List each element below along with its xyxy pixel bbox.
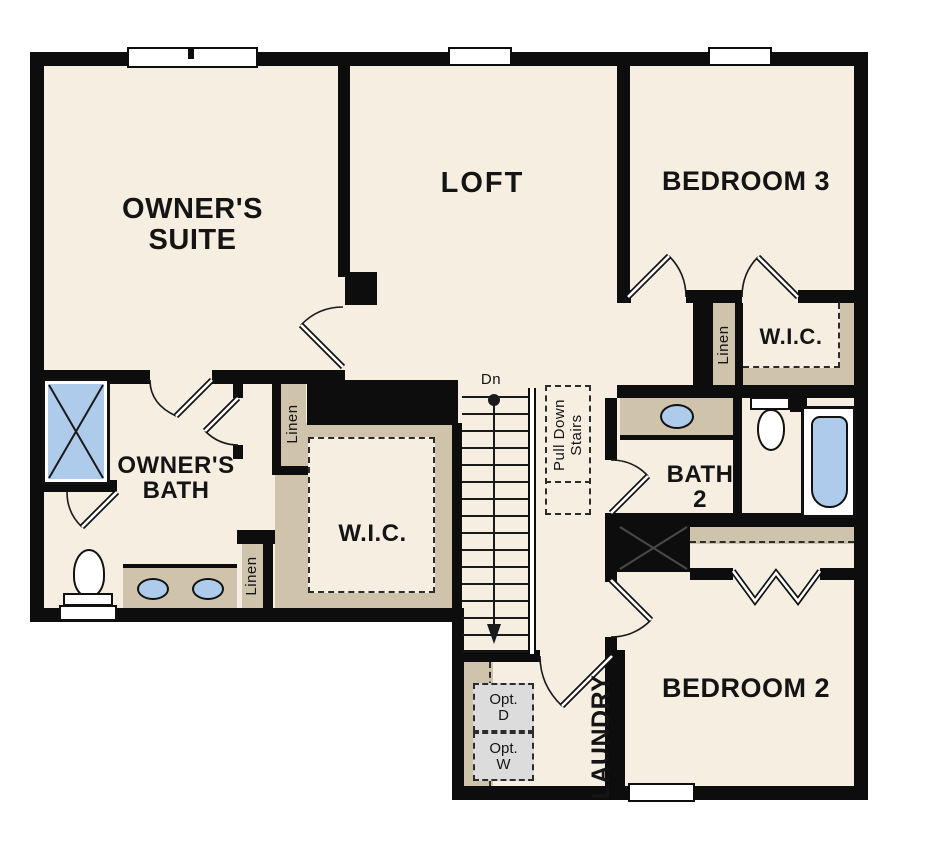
floor-plan: Opt. D Opt. W	[0, 0, 943, 849]
room-label-bedroom3: BEDROOM 3	[650, 163, 842, 199]
wic-owners-floor	[308, 437, 435, 593]
window-bedroom2	[628, 783, 695, 802]
wall	[345, 272, 377, 305]
window-mullion	[188, 49, 194, 59]
linen-label-bedroom3: Linen	[716, 313, 732, 377]
wall	[123, 564, 237, 568]
room-label-loft: LOFT	[420, 165, 545, 201]
optional-dryer-label: Opt. D	[486, 692, 522, 724]
wall	[693, 303, 713, 387]
optional-dryer-box: Opt. D	[473, 683, 534, 732]
bathtub-basin	[811, 416, 848, 508]
wall	[452, 423, 462, 650]
optional-washer-box: Opt. W	[473, 732, 534, 781]
sink-owners-right	[192, 578, 224, 600]
sink-bath2	[660, 404, 694, 429]
sink-owners-left	[137, 578, 169, 600]
wall	[686, 290, 742, 303]
optional-washer-label: Opt. W	[486, 741, 522, 773]
wall	[617, 385, 868, 398]
wall	[605, 527, 617, 582]
wall	[272, 466, 308, 475]
wall	[30, 52, 44, 622]
wall	[617, 52, 630, 303]
wall	[854, 52, 868, 800]
wall	[820, 568, 868, 580]
wall	[612, 650, 625, 662]
wall	[307, 380, 458, 425]
wall	[263, 530, 273, 608]
window-bedroom3	[708, 47, 772, 66]
wall	[617, 290, 631, 303]
bedroom2-closet-rod	[690, 541, 854, 546]
room-label-owners-bath: OWNER'S BATH	[108, 446, 244, 510]
room-label-laundry: LAUNDRY	[587, 672, 615, 802]
chase-box	[617, 524, 690, 572]
room-label-bedroom2: BEDROOM 2	[650, 670, 842, 706]
wall	[605, 637, 617, 650]
toilet-bath2-bowl	[757, 409, 785, 451]
linen-label-bath: Linen	[244, 544, 260, 608]
wall	[620, 435, 733, 440]
wall	[605, 398, 617, 460]
toilet-owners-bowl	[73, 549, 105, 597]
pull-down-stairs-label: Pull Down Stairs	[545, 385, 591, 485]
room-label-wic-bedroom3: W.I.C.	[751, 323, 831, 351]
wall	[338, 52, 350, 277]
wall	[233, 380, 243, 398]
room-label-bath2: BATH 2	[664, 457, 736, 517]
stairs-down-label: Dn	[474, 371, 508, 389]
staircase	[462, 396, 528, 652]
room-label-wic-owners: W.I.C.	[330, 519, 415, 549]
linen-label-hall: Linen	[285, 392, 301, 456]
room-label-owners-suite: OWNER'S SUITE	[90, 190, 295, 260]
stair-rail	[528, 388, 536, 654]
wall	[798, 290, 860, 303]
shower-pan	[48, 384, 104, 479]
toilet-owners-base	[59, 605, 117, 621]
wall	[272, 380, 281, 466]
window-loft	[448, 47, 512, 66]
wall	[735, 303, 743, 387]
wall	[690, 568, 733, 580]
